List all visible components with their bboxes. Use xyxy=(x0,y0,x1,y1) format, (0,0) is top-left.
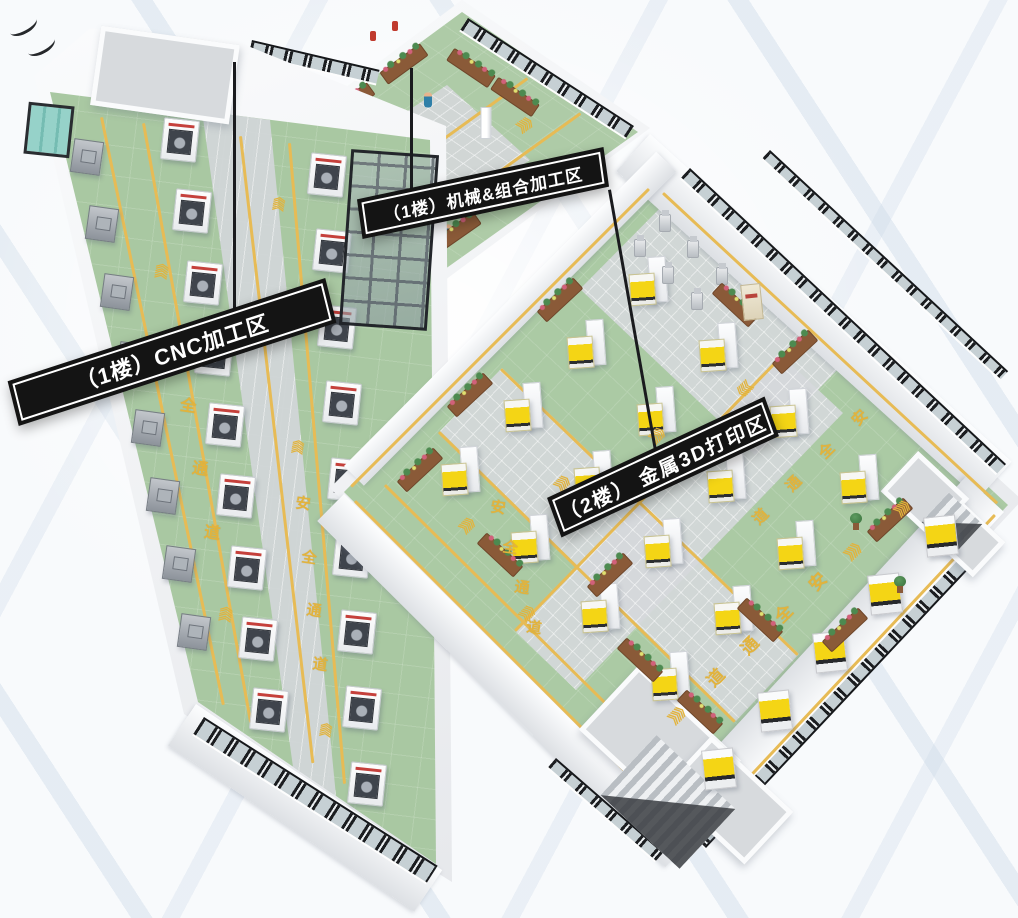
wall-printer xyxy=(923,514,959,557)
robot-arm xyxy=(659,214,671,232)
safety-lane-text-char: 安 xyxy=(490,500,507,517)
robot-arm xyxy=(662,266,674,284)
direction-chevrons-icon: 《《《 xyxy=(458,510,481,533)
safety-lane-text-char: 全 xyxy=(816,440,837,461)
safety-lane-text-char: 道 xyxy=(750,506,771,527)
metal-3d-printer xyxy=(565,319,608,370)
direction-chevrons-icon: 《《《 xyxy=(843,535,868,560)
factory-3d-floorplan: 安全通道《《《《《《《《《 安全通道安全通道《《《《《《《《《《《《《《《 安全… xyxy=(0,0,1018,918)
flower-planter xyxy=(397,447,444,492)
safety-lane-text-char: 通 xyxy=(514,580,531,597)
safety-lane-text-char: 全 xyxy=(502,540,519,557)
metal-3d-printer xyxy=(642,517,685,568)
robot-arm xyxy=(691,292,703,310)
banner-pole xyxy=(233,62,236,314)
robot-arm xyxy=(687,240,699,258)
potted-plant xyxy=(849,513,863,531)
wall-printer xyxy=(701,747,737,790)
safety-lane-text-char: 通 xyxy=(738,634,762,658)
safety-lane-text-char: 安 xyxy=(849,407,870,428)
direction-chevrons-icon: 《《《 xyxy=(730,380,753,403)
equipment-layer: 安全通道安全通道安全通道《《《《《《《《《《《《《《《《《《《《《《《《 xyxy=(0,0,1018,918)
safety-lane-text-char: 道 xyxy=(704,666,728,690)
safety-lane-text-char: 安 xyxy=(806,570,830,594)
potted-plant xyxy=(893,576,907,594)
safety-lane-text-char: 通 xyxy=(783,473,804,494)
robot-arm xyxy=(634,239,646,257)
metal-3d-printer xyxy=(838,454,881,505)
metal-3d-printer xyxy=(440,445,483,496)
control-cabinet xyxy=(740,283,764,321)
metal-3d-printer xyxy=(698,322,741,373)
metal-3d-printer xyxy=(775,519,818,570)
metal-3d-printer xyxy=(502,382,545,433)
flower-planter xyxy=(772,329,819,374)
zone-metal-3d-printing: 安全通道安全通道安全通道《《《《《《《《《《《《《《《《《《《《《《《《 xyxy=(0,0,1018,918)
wall-printer xyxy=(757,689,793,732)
